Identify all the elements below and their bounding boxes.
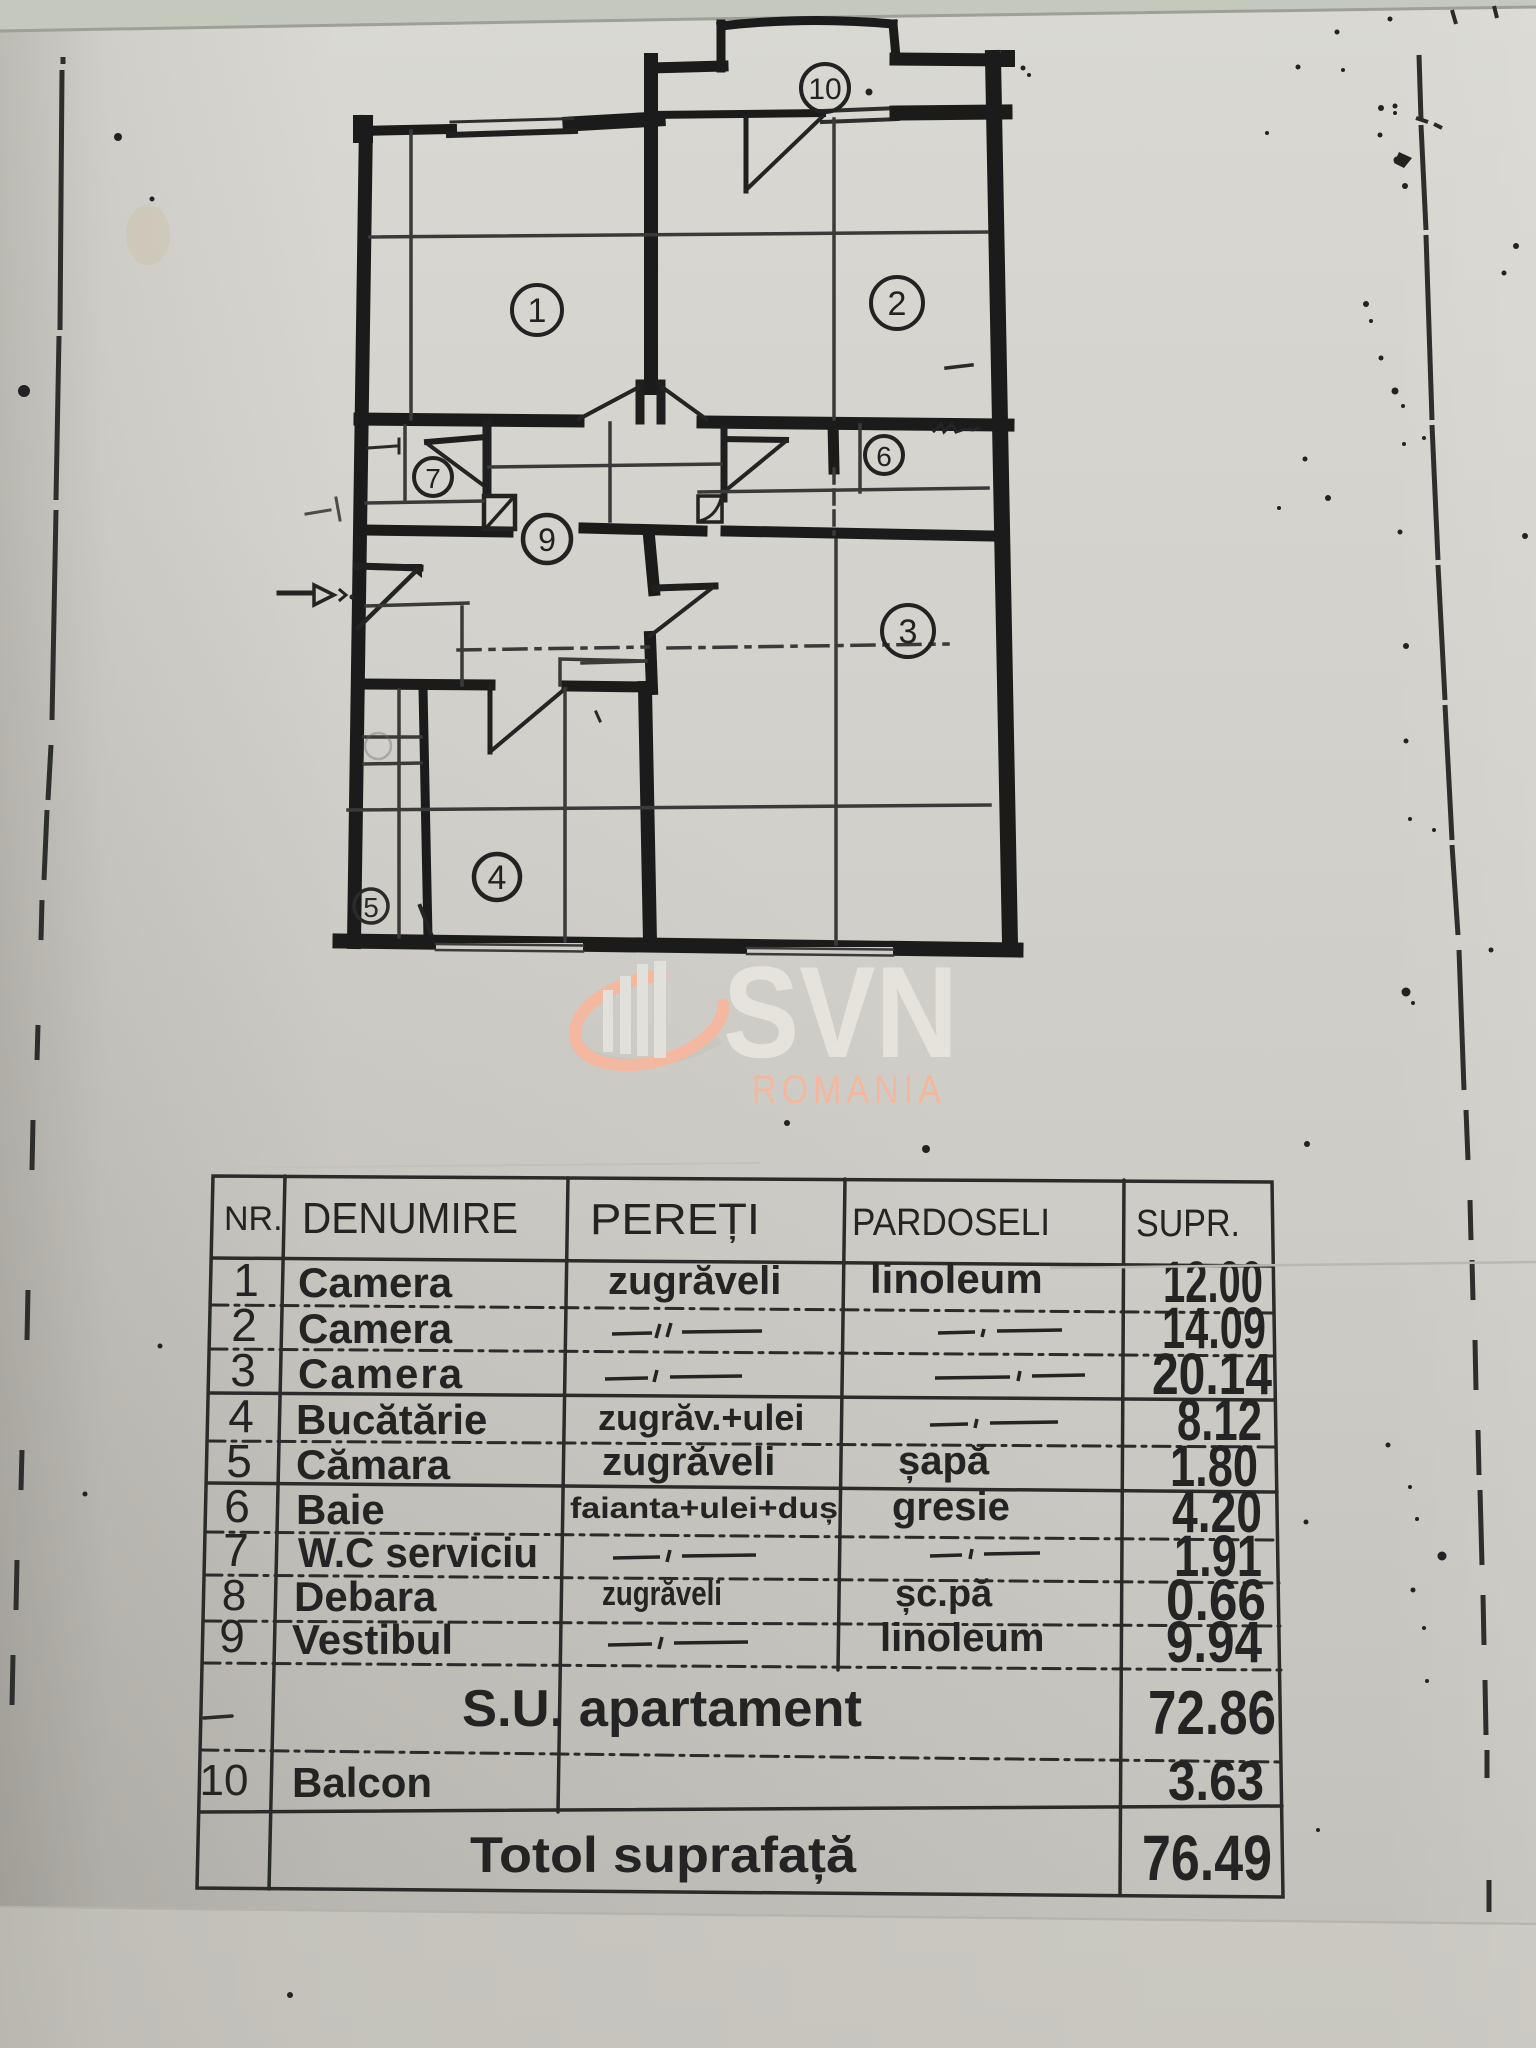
svg-text:Cămara: Cămara	[296, 1441, 451, 1488]
svg-text:3: 3	[230, 1344, 256, 1396]
svg-text:zugrăveli: zugrăveli	[602, 1575, 722, 1613]
svg-text:7: 7	[425, 463, 441, 494]
svg-text:Camera: Camera	[298, 1259, 453, 1306]
svg-text:5: 5	[363, 892, 379, 923]
svg-text:zugrăveli: zugrăveli	[608, 1259, 781, 1303]
svg-text:9: 9	[538, 522, 556, 558]
svg-text:gresie: gresie	[892, 1485, 1010, 1529]
svg-text:S.U. apartament: S.U. apartament	[462, 1680, 862, 1738]
svg-text:Totol suprafață: Totol suprafață	[470, 1827, 857, 1883]
svg-text:ROMANIA: ROMANIA	[752, 1068, 946, 1112]
svg-text:Baie: Baie	[296, 1486, 385, 1533]
svg-text:7: 7	[223, 1524, 249, 1576]
svg-text:9.94: 9.94	[1166, 1610, 1262, 1675]
svg-text:9: 9	[219, 1610, 245, 1662]
svg-text:PEREȚI: PEREȚI	[590, 1195, 760, 1244]
svg-text:W.C serviciu: W.C serviciu	[298, 1529, 538, 1576]
svg-text:6: 6	[876, 441, 892, 472]
svg-text:NR.: NR.	[224, 1200, 283, 1238]
svg-text:Debara: Debara	[294, 1573, 437, 1620]
svg-text:10: 10	[200, 1756, 249, 1805]
svg-text:1: 1	[528, 292, 547, 330]
svg-text:76.49: 76.49	[1142, 1822, 1272, 1894]
svg-text:72.86: 72.86	[1148, 1679, 1276, 1748]
svg-text:PARDOSELI: PARDOSELI	[852, 1202, 1050, 1244]
svg-text:linoleum: linoleum	[870, 1255, 1043, 1302]
svg-text:4: 4	[488, 859, 507, 897]
svg-text:10: 10	[808, 73, 841, 106]
svg-text:Bucătărie: Bucătărie	[296, 1396, 487, 1443]
svg-text:zugrăv.+ulei: zugrăv.+ulei	[598, 1397, 804, 1438]
svg-text:șapă: șapă	[898, 1439, 990, 1483]
svg-text:2: 2	[888, 285, 907, 323]
svg-text:3.63: 3.63	[1168, 1749, 1264, 1812]
svg-text:faianta+ulei+duș: faianta+ulei+duș	[570, 1492, 838, 1525]
svg-text:DENUMIRE: DENUMIRE	[302, 1194, 518, 1243]
svg-text:Balcon: Balcon	[292, 1759, 432, 1806]
svg-text:zugrăveli: zugrăveli	[602, 1440, 775, 1484]
svg-text:Vestibul: Vestibul	[292, 1616, 453, 1663]
svg-text:SUPR.: SUPR.	[1136, 1203, 1240, 1245]
svg-text:3: 3	[899, 613, 918, 651]
svg-text:linoleum: linoleum	[880, 1616, 1044, 1660]
svg-text:SVN: SVN	[723, 939, 958, 1085]
svg-text:șc.pă: șc.pă	[895, 1573, 993, 1615]
svg-text:Camera: Camera	[298, 1305, 453, 1352]
svg-text:Camera: Camera	[298, 1350, 464, 1397]
